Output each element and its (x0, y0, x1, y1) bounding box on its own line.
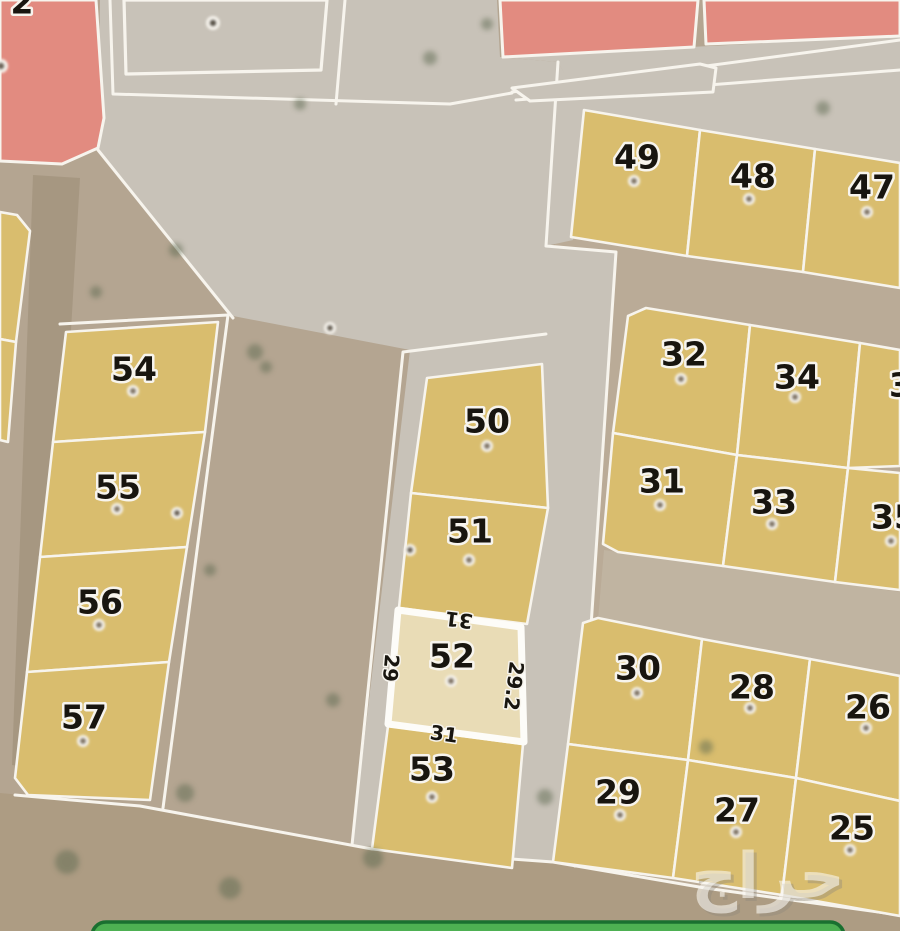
parcel-56-label: 56 (77, 583, 123, 622)
satellite-parcel-map-view: 49 48 47 32 34 36 31 33 35 30 28 26 29 2… (0, 0, 900, 931)
parcel-36-label-partial: 36 (889, 366, 900, 405)
parcel-53-label: 53 (409, 750, 455, 789)
parcel-29-label: 29 (595, 773, 641, 812)
parcel-30-label: 30 (615, 649, 661, 688)
parcel-49-label: 49 (614, 138, 660, 177)
parcel-red-topcenter[interactable] (500, 0, 698, 57)
dim-top-label: 31 (444, 606, 475, 633)
parcel-topleft-label-partial: 2 (11, 0, 34, 22)
parcel-51-label: 51 (447, 512, 493, 551)
dim-bottom-label: 31 (429, 720, 460, 748)
parcel-32-label: 32 (661, 335, 707, 374)
parcel-52-label: 52 (429, 637, 475, 676)
parcel-map: 49 48 47 32 34 36 31 33 35 30 28 26 29 2… (0, 0, 900, 931)
parcel-red-topright[interactable] (704, 0, 900, 44)
parcel-55-label: 55 (95, 468, 141, 507)
parcel-54-label: 54 (111, 350, 157, 389)
watermark-haraj: حراج (691, 840, 845, 914)
parcel-26[interactable] (796, 659, 900, 801)
parcel-26-label: 26 (845, 688, 891, 727)
parcel-31-label: 31 (639, 462, 685, 501)
parcel-57-label: 57 (61, 698, 107, 737)
parcel-28-label: 28 (729, 668, 775, 707)
action-button-partial[interactable] (92, 922, 844, 931)
parcel-33-label: 33 (751, 483, 797, 522)
parcel-35-label: 35 (871, 498, 900, 537)
parcel-34-label: 34 (774, 358, 820, 397)
parcel-48-label: 48 (730, 157, 776, 196)
parcel-47-label: 47 (849, 168, 895, 207)
parcel-50-label: 50 (464, 402, 510, 441)
parcel-27-label: 27 (714, 791, 760, 830)
dim-left-label: 29 (378, 653, 404, 683)
parcel-53[interactable] (372, 726, 523, 868)
parcel-red-topleft[interactable] (0, 0, 104, 164)
